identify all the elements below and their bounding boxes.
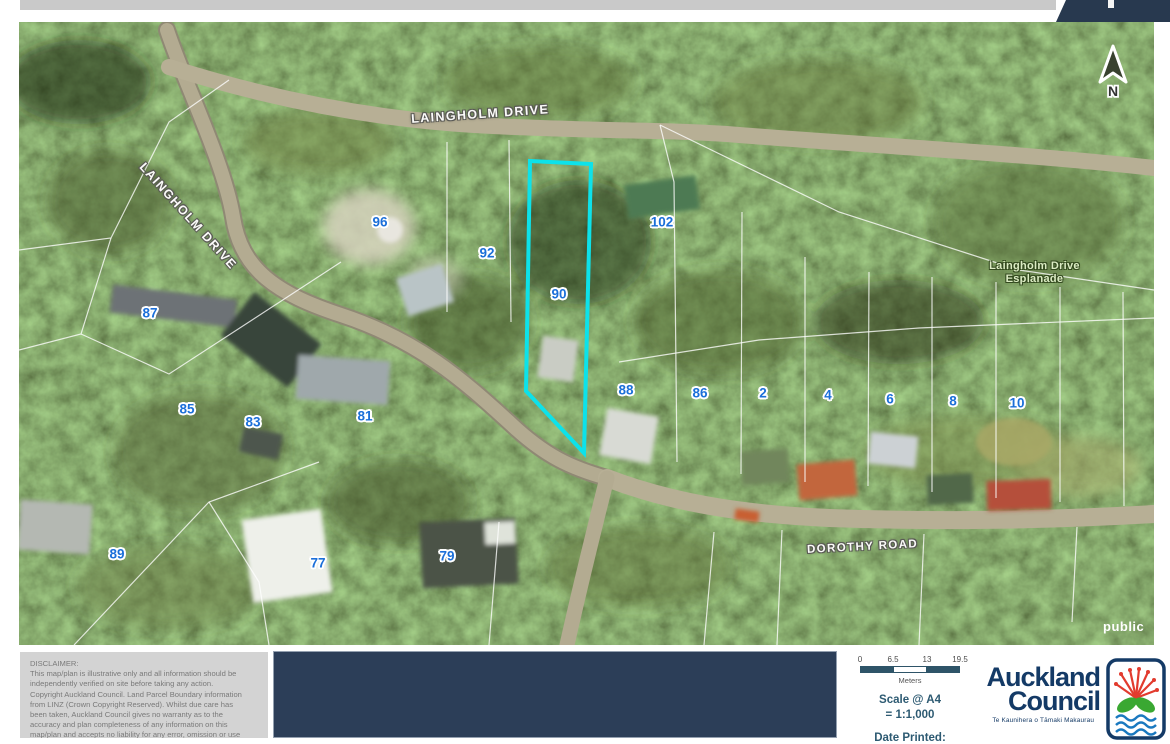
house-number-96: 96 xyxy=(372,215,387,230)
pohutukawa-emblem-icon xyxy=(1106,658,1166,740)
house-number-92: 92 xyxy=(479,246,494,261)
house-number-81: 81 xyxy=(357,409,372,424)
scale-tick: 0 xyxy=(858,655,862,664)
north-arrow-icon: N xyxy=(1091,42,1135,100)
logo-line2: Council xyxy=(986,690,1100,714)
house-number-10: 10 xyxy=(1009,396,1024,411)
scale-tick: 6.5 xyxy=(887,655,898,664)
house-number-86: 86 xyxy=(692,386,707,401)
scale-bar: 0 6.5 13 19.5 Meters xyxy=(855,655,965,685)
house-number-87: 87 xyxy=(142,306,157,321)
house-number-83: 83 xyxy=(245,415,260,430)
top-toolbar-strip xyxy=(20,0,1056,10)
house-number-85: 85 xyxy=(179,402,194,417)
house-number-6: 6 xyxy=(886,392,894,407)
scale-bar-segments xyxy=(860,666,960,673)
header-tab[interactable] xyxy=(1056,0,1170,22)
house-number-79: 79 xyxy=(439,549,454,564)
header-tab-icon xyxy=(1108,0,1114,8)
house-number-8: 8 xyxy=(949,394,957,409)
scale-tick: 19.5 xyxy=(952,655,968,664)
aerial-imagery xyxy=(19,22,1154,645)
house-number-88: 88 xyxy=(618,383,633,398)
scale-tick: 13 xyxy=(923,655,932,664)
scale-ratio-line2: = 1:1,000 xyxy=(848,708,972,723)
house-number-102: 102 xyxy=(651,215,674,230)
logo-tagline: Te Kaunihera o Tāmaki Makaurau xyxy=(986,717,1100,724)
house-number-89: 89 xyxy=(109,547,124,562)
reserve-label-laingholm-drive-esplanade: Laingholm Drive Esplanade xyxy=(972,260,1097,286)
house-number-2: 2 xyxy=(759,386,767,401)
map-title-box xyxy=(273,651,837,738)
house-number-90: 90 xyxy=(551,287,566,302)
disclaimer-text: DISCLAIMER: This map/plan is illustrativ… xyxy=(20,652,268,738)
scale-unit-label: Meters xyxy=(855,676,965,685)
auckland-council-logo: Auckland Council Te Kaunihera o Tāmaki M… xyxy=(984,658,1166,738)
public-watermark: public xyxy=(1103,619,1144,634)
scale-panel: 0 6.5 13 19.5 Meters Scale @ A4 = 1:1,00… xyxy=(848,655,972,744)
svg-text:N: N xyxy=(1108,83,1118,99)
house-number-4: 4 xyxy=(824,388,832,403)
house-number-77: 77 xyxy=(310,556,325,571)
aerial-map-canvas[interactable]: LAINGHOLM DRIVE LAINGHOLM DRIVE DOROTHY … xyxy=(19,22,1154,645)
scale-ratio-line1: Scale @ A4 xyxy=(848,693,972,708)
